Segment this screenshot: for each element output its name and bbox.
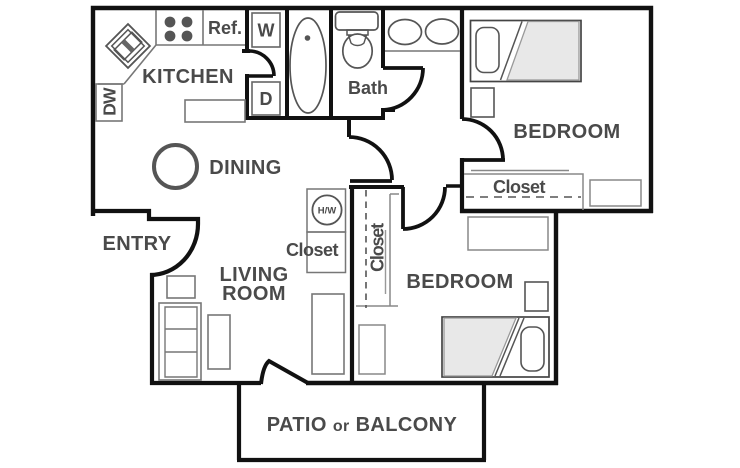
svg-text:DW: DW (100, 87, 120, 116)
svg-text:Closet: Closet (368, 223, 388, 272)
svg-text:Ref.: Ref. (208, 18, 242, 38)
svg-text:D: D (260, 89, 273, 109)
svg-text:ROOM: ROOM (222, 283, 286, 305)
svg-text:W: W (258, 21, 275, 41)
svg-text:BEDROOM: BEDROOM (406, 271, 513, 293)
svg-text:Closet: Closet (493, 177, 546, 197)
svg-text:KITCHEN: KITCHEN (142, 66, 234, 88)
svg-text:BEDROOM: BEDROOM (513, 121, 620, 143)
svg-text:PATIO or BALCONY: PATIO or BALCONY (267, 414, 458, 436)
svg-text:Closet: Closet (286, 240, 339, 260)
svg-text:H/W: H/W (318, 206, 337, 217)
svg-text:Bath: Bath (348, 78, 388, 98)
svg-text:ENTRY: ENTRY (102, 233, 171, 255)
svg-text:DINING: DINING (209, 157, 281, 179)
